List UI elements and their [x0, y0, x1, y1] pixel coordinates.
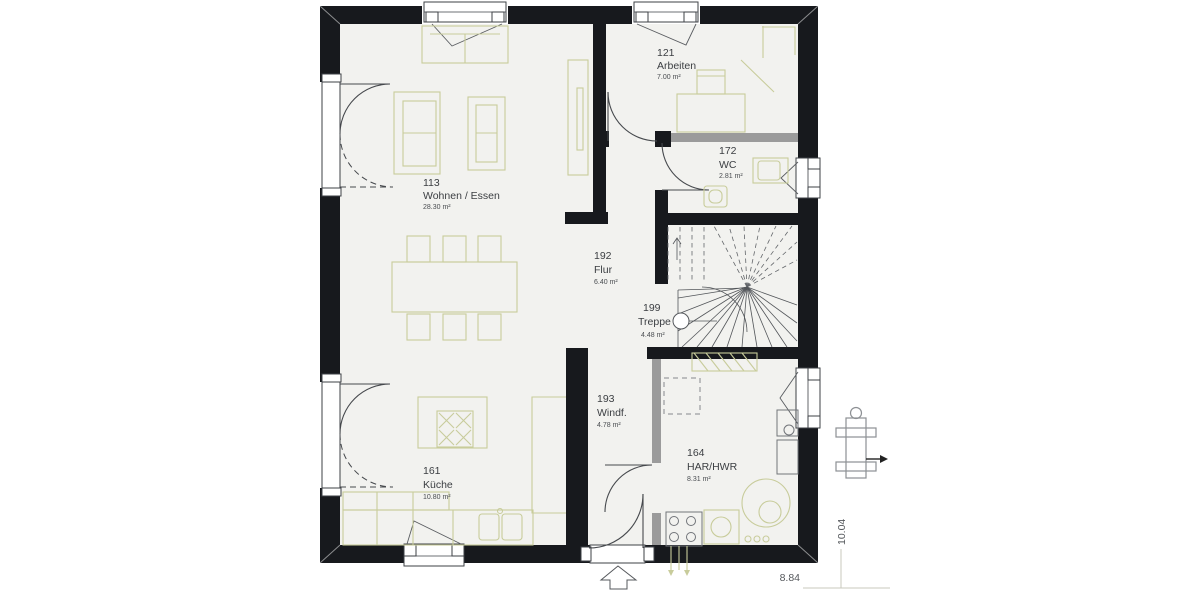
room-number: 199	[643, 302, 661, 314]
utility-supply-pipes	[668, 546, 690, 576]
door-jamb	[322, 488, 341, 496]
room-area: 28.30 m²	[423, 204, 451, 211]
room-number: 172	[719, 145, 737, 157]
wall-right-mid-segment	[798, 198, 818, 368]
door-jamb	[322, 188, 341, 196]
wall-bottom-mid-segment	[464, 545, 590, 563]
window-end-block	[452, 545, 464, 556]
dimension-depth: 10.04	[836, 519, 848, 545]
wall-living-corridor-foot	[565, 212, 608, 224]
window-end-block	[808, 416, 820, 428]
stairs-marker-circle	[673, 313, 689, 329]
room-name: HAR/HWR	[687, 461, 738, 473]
wall-wc-stairs	[655, 213, 798, 225]
wall-right-upper-segment	[798, 6, 818, 158]
wall-left-mid-segment	[320, 188, 340, 382]
wall-left-lower-segment	[320, 488, 340, 563]
room-area: 2.81 m²	[719, 173, 743, 180]
window-end-block	[404, 545, 416, 556]
room-number: 192	[594, 250, 612, 262]
door-jamb	[322, 374, 341, 382]
floor-plan-canvas: 10.04 8.84 113 Wohnen / Essen 28.30 m² 1…	[0, 0, 1200, 600]
wall-jog-corridor	[593, 131, 609, 147]
pipe-arrow	[684, 570, 690, 576]
pipe-arrow	[668, 570, 674, 576]
section-symbol	[836, 408, 888, 479]
room-number: 164	[687, 447, 705, 459]
window-end-block	[808, 158, 820, 169]
room-name: Treppe	[638, 316, 671, 328]
symbol-arrow-head	[880, 455, 888, 463]
wall-left-upper-segment	[320, 6, 340, 82]
entrance-arrow	[601, 566, 636, 589]
room-name: WC	[719, 159, 737, 171]
window-end-block	[636, 12, 648, 22]
room-area: 10.80 m²	[423, 494, 451, 501]
symbol-circle	[851, 408, 862, 419]
wall-wc-door-jamb	[655, 190, 668, 213]
door-jamb	[644, 547, 654, 561]
window-end-block	[808, 187, 820, 198]
room-number: 193	[597, 393, 615, 405]
window-end-block	[684, 12, 696, 22]
wall-stairs-west	[655, 225, 668, 284]
wall-kitchen-vestibule	[566, 348, 588, 545]
dimension-width: 8.84	[780, 572, 801, 584]
room-area: 8.31 m²	[687, 476, 711, 483]
wall-living-corridor	[593, 24, 606, 212]
window-end-block	[426, 12, 438, 22]
room-number: 113	[423, 177, 440, 189]
room-name: Windf.	[597, 407, 627, 419]
door-jamb	[581, 547, 591, 561]
wall-top-mid-segment	[508, 6, 632, 24]
wall-right-lower-segment	[798, 428, 818, 563]
room-area: 4.48 m²	[641, 332, 665, 339]
partition-vestibule-utility-lower	[652, 513, 661, 545]
partition-office-wc	[671, 133, 798, 142]
door-jamb	[322, 74, 341, 82]
room-area: 6.40 m²	[594, 279, 618, 286]
wall-stub-wc-corner	[655, 131, 671, 147]
room-name: Arbeiten	[657, 60, 696, 72]
room-name: Flur	[594, 264, 613, 276]
room-number: 161	[423, 465, 441, 477]
room-name: Wohnen / Essen	[423, 190, 500, 202]
room-number: 121	[657, 47, 675, 59]
window-end-block	[492, 12, 504, 22]
room-area: 7.00 m²	[657, 74, 681, 81]
room-area: 4.78 m²	[597, 422, 621, 429]
room-name: Küche	[423, 479, 453, 491]
partition-vestibule-utility-upper	[652, 359, 661, 463]
window-end-block	[808, 368, 820, 380]
